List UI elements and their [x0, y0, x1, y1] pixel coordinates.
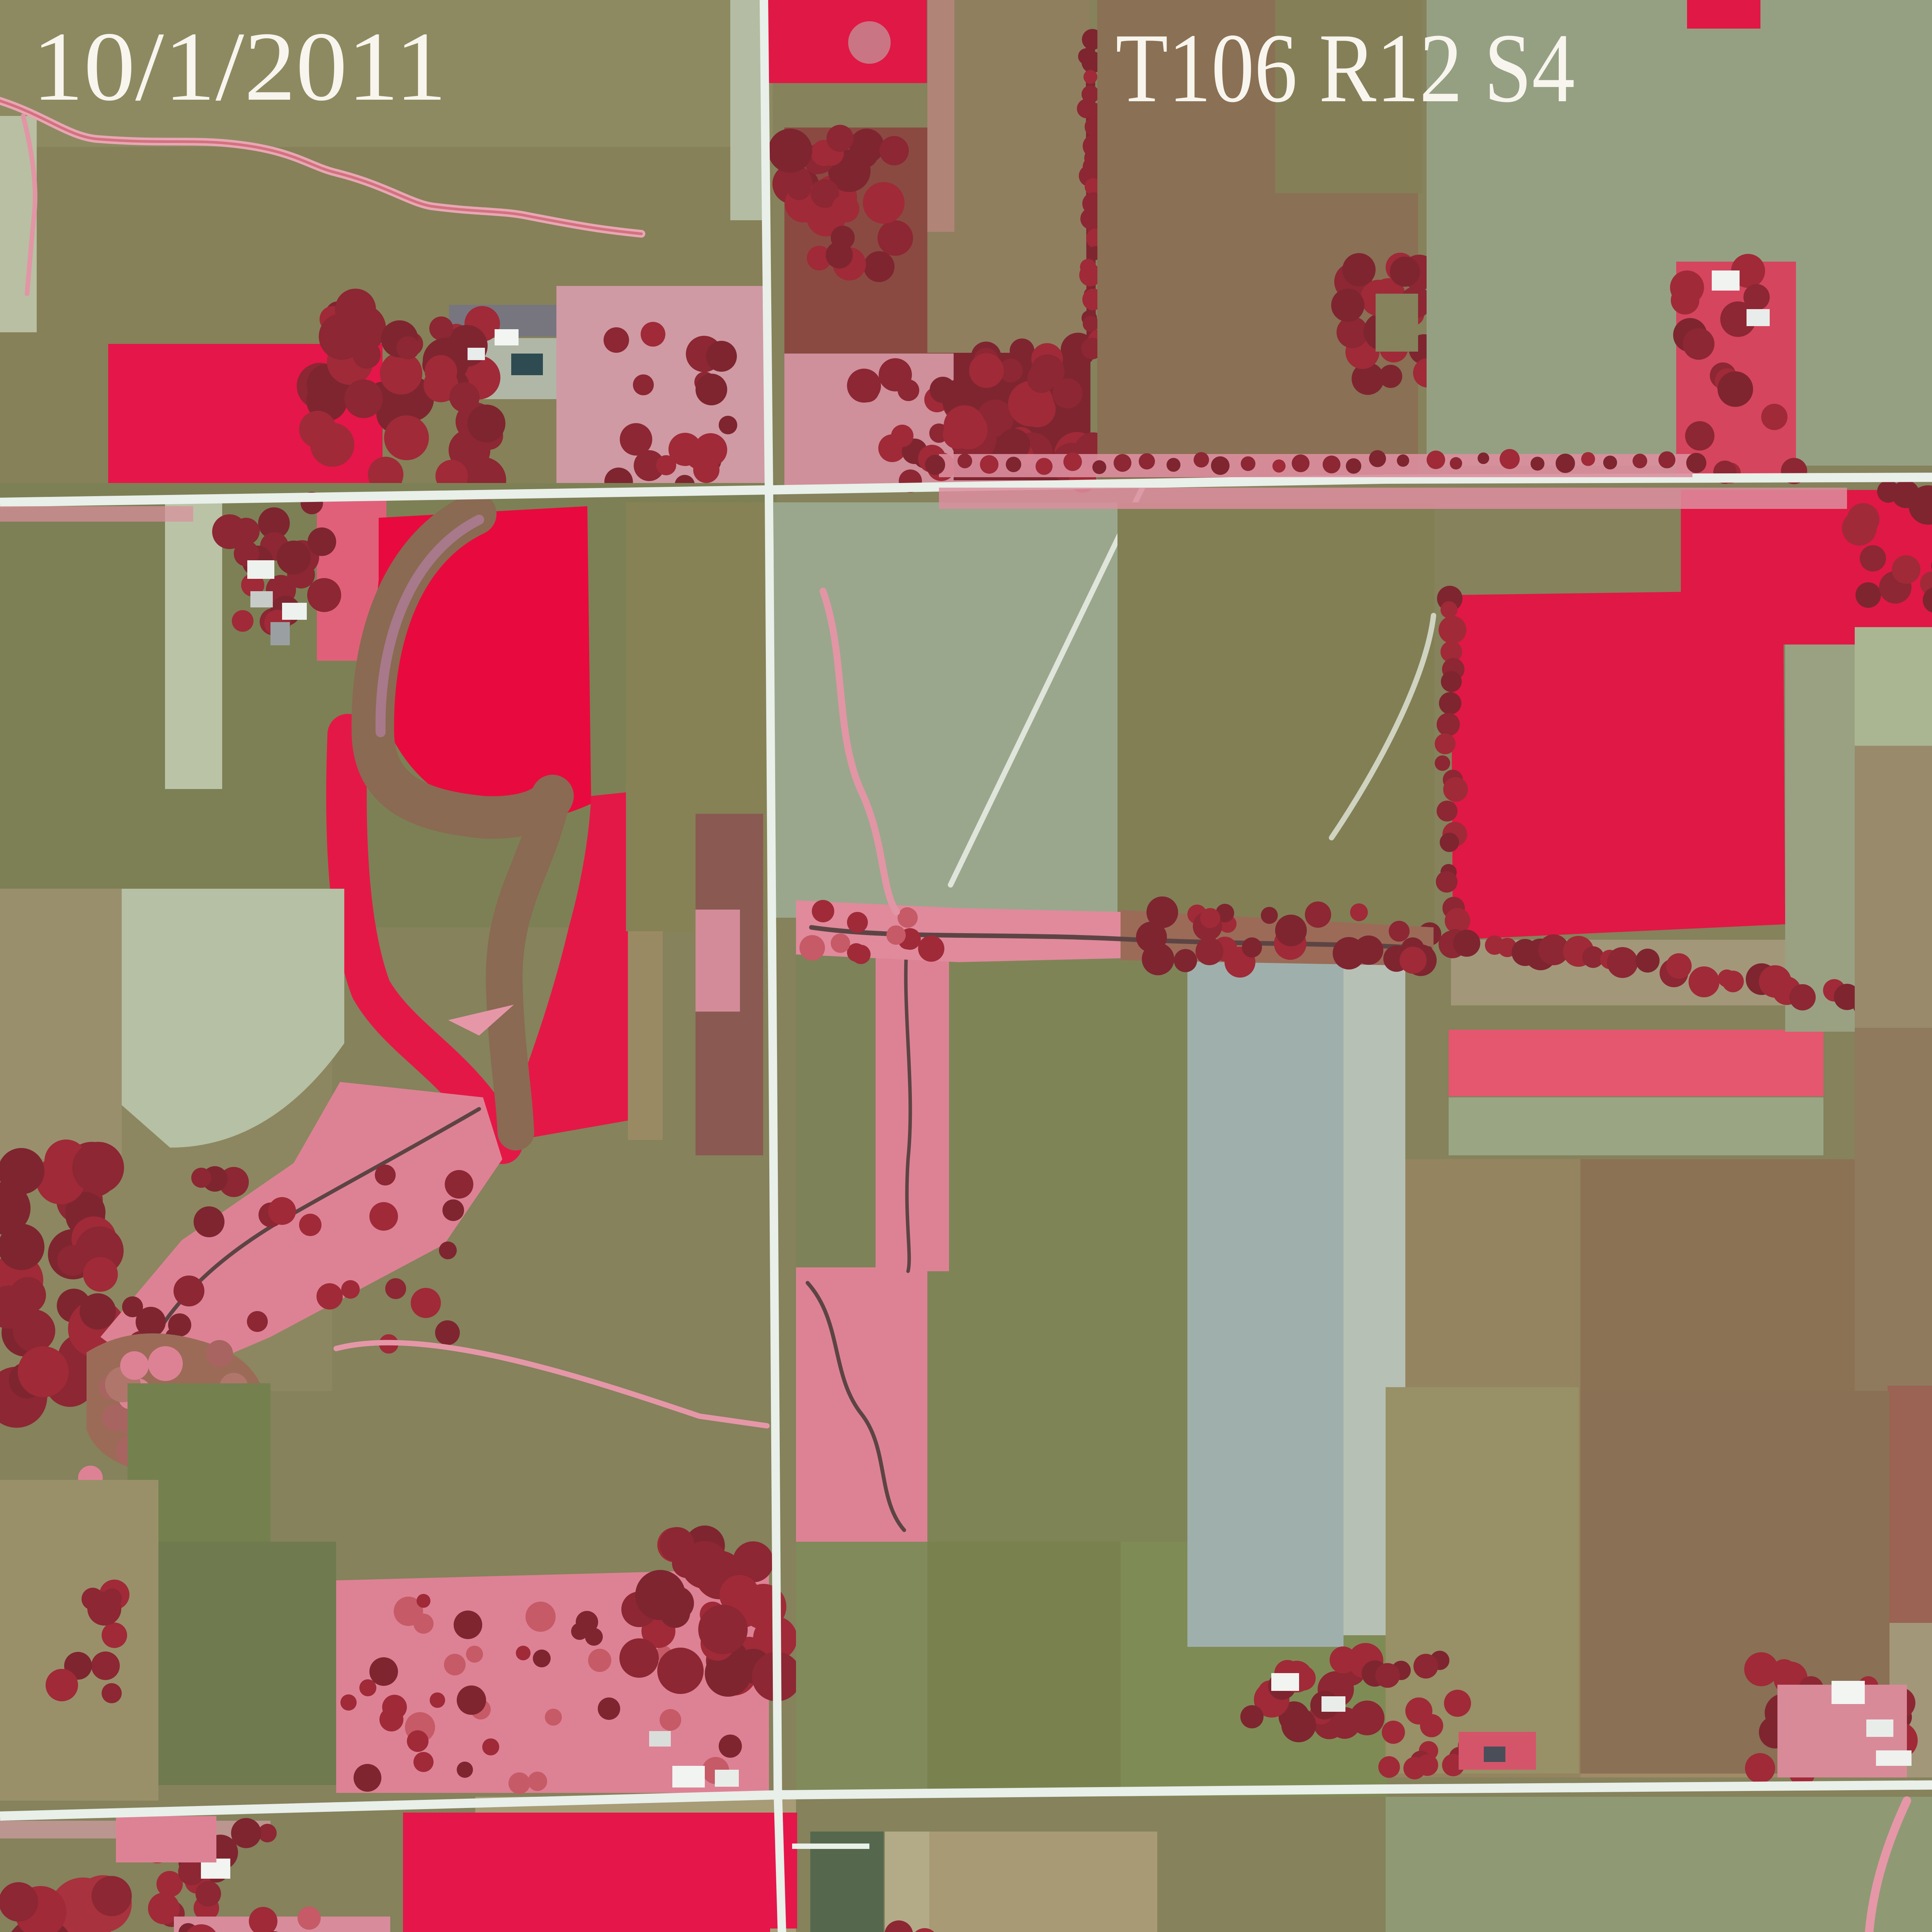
svg-text:T106 R12 S4: T106 R12 S4	[1116, 14, 1575, 123]
svg-text:10/1/2011: 10/1/2011	[32, 12, 447, 121]
